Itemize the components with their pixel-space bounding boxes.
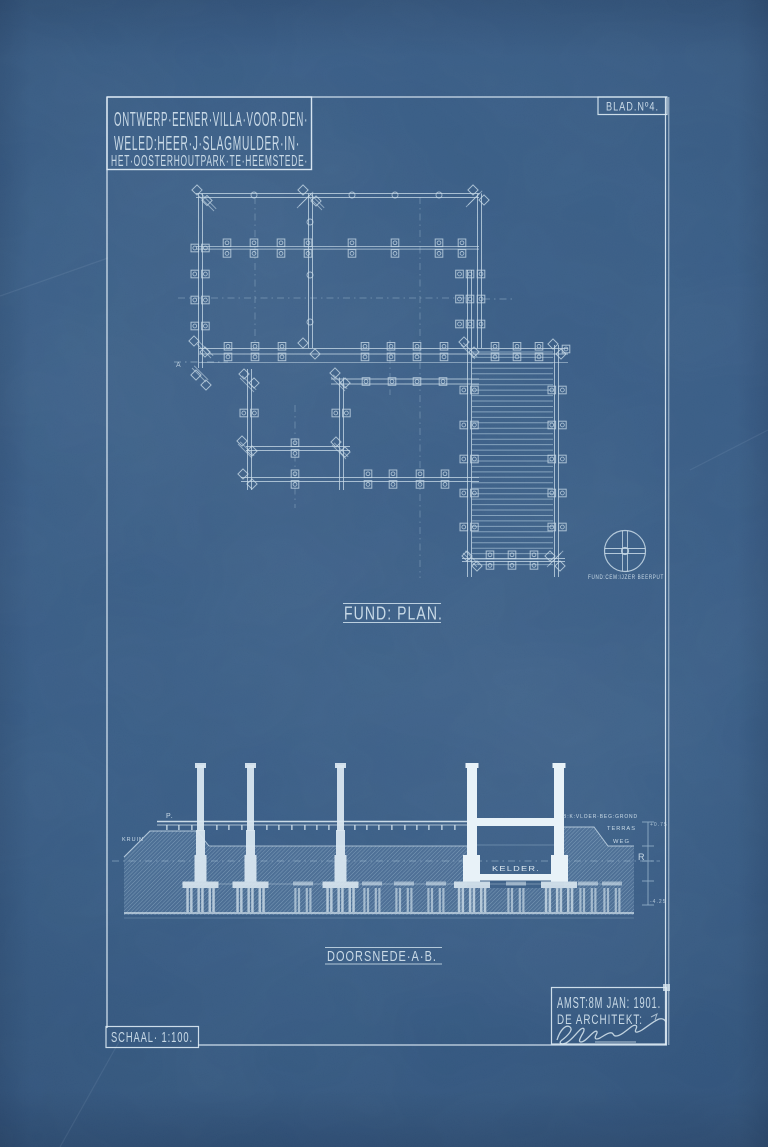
svg-text:-4.25: -4.25: [650, 899, 666, 905]
svg-text:DOORSNEDE·A·B.: DOORSNEDE·A·B.: [327, 947, 437, 964]
svg-text:+0.75: +0.75: [650, 822, 668, 828]
svg-text:A: A: [176, 362, 182, 369]
svg-text:KRUIN: KRUIN: [122, 837, 144, 843]
svg-text:AMST:8M JAN: 1901.: AMST:8M JAN: 1901.: [557, 994, 661, 1011]
svg-text:B:K:VLOER·BEG:GROND: B:K:VLOER·BEG:GROND: [563, 814, 638, 820]
svg-text:BLAD.Nº4.: BLAD.Nº4.: [606, 100, 659, 114]
svg-text:HET·OOSTERHOUTPARK·TE·HEEMSTED: HET·OOSTERHOUTPARK·TE·HEEMSTEDE·: [111, 152, 308, 169]
svg-text:P.: P.: [166, 813, 174, 820]
svg-text:SCHAAL· 1:100.: SCHAAL· 1:100.: [111, 1029, 193, 1045]
svg-text:R: R: [638, 852, 646, 862]
svg-text:WEG: WEG: [613, 839, 630, 845]
svg-text:DE ARCHITEKT:: DE ARCHITEKT:: [557, 1011, 643, 1027]
svg-text:FUND:CEM:IJZER BEERPUT: FUND:CEM:IJZER BEERPUT: [588, 574, 664, 581]
svg-text:TERRAS: TERRAS: [607, 826, 636, 832]
svg-text:FUND: PLAN.: FUND: PLAN.: [344, 603, 443, 624]
svg-text:ONTWERP·EENER·VILLA·VOOR·DEN·: ONTWERP·EENER·VILLA·VOOR·DEN·: [114, 107, 308, 131]
svg-text:KELDER.: KELDER.: [492, 864, 540, 873]
